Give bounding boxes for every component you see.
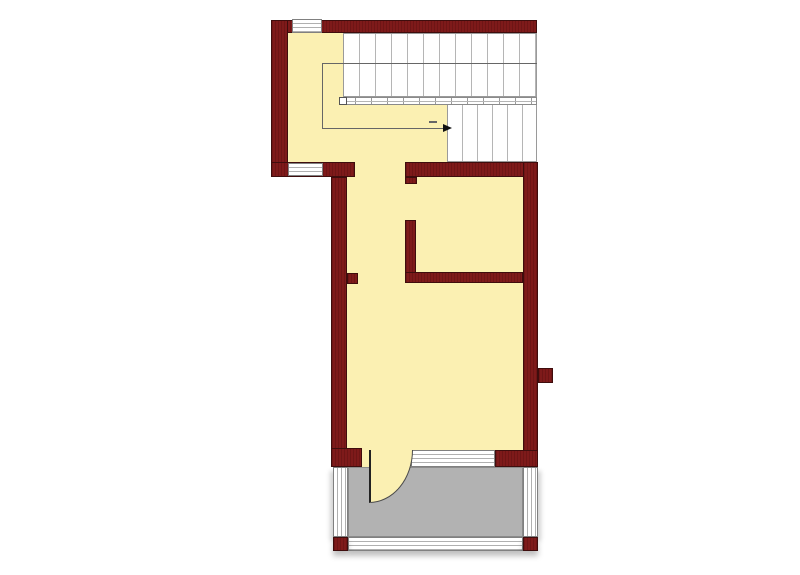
stair-walk-line-tick: [429, 121, 437, 123]
window-main-bottom: [411, 450, 495, 467]
window-bumpout-bottom: [288, 163, 323, 176]
wall-left: [271, 20, 288, 177]
stair-newel-post: [339, 97, 347, 105]
staircase-upper-flight: [343, 33, 537, 97]
terrace-corner-block-left: [333, 537, 348, 551]
stair-walk-line-left: [322, 63, 323, 129]
wall-pier-partition-top: [405, 177, 417, 184]
window-top: [292, 19, 322, 33]
staircase-lower-flight: [447, 104, 537, 162]
floor-plan: [0, 0, 800, 575]
wall-pier-left-inner: [347, 273, 358, 284]
terrace-frame-bottom: [348, 537, 523, 551]
stair-walk-line-top: [322, 63, 537, 64]
wall-main-top-right: [405, 162, 537, 177]
wall-bottom-right-corner: [495, 450, 538, 467]
stair-handrail: [339, 97, 537, 105]
stair-direction-arrow: [443, 124, 452, 132]
wall-right: [523, 162, 538, 467]
wall-bottom-left-corner: [331, 448, 362, 467]
wall-pier-right-outer: [538, 368, 553, 383]
wall-partition-horizontal: [405, 272, 523, 283]
floor-main-room: [347, 162, 523, 450]
terrace-frame-left: [333, 467, 348, 537]
stair-walk-line-bottom: [322, 128, 444, 129]
terrace-frame-right: [523, 467, 538, 537]
wall-main-left: [331, 177, 347, 467]
terrace-corner-block-right: [523, 537, 538, 551]
